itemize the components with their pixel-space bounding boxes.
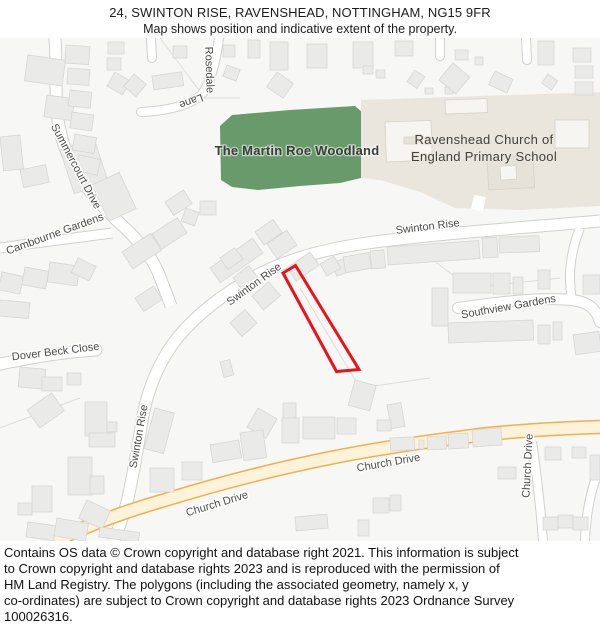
footer-line: HM Land Registry. The polygons (includin… (4, 577, 596, 593)
school-label-line1: Ravenshead Church of (415, 132, 554, 147)
footer-line: Contains OS data © Crown copyright and d… (4, 545, 596, 561)
school-label-line2: England Primary School (411, 149, 557, 164)
copyright-footer: Contains OS data © Crown copyright and d… (0, 541, 600, 625)
woodland-label: The Martin Roe Woodland (215, 143, 380, 158)
road-label-rosedale: Rosedale (202, 46, 216, 93)
footer-line: co-ordinates) are subject to Crown copyr… (4, 593, 596, 609)
footer-line: 100026316. (4, 609, 596, 625)
page-subtitle: Map shows position and indicative extent… (0, 20, 600, 36)
page-title: 24, SWINTON RISE, RAVENSHEAD, NOTTINGHAM… (0, 0, 600, 20)
property-map: The Martin Roe Woodland Ravenshead Churc… (0, 38, 600, 541)
header: 24, SWINTON RISE, RAVENSHEAD, NOTTINGHAM… (0, 0, 600, 38)
footer-line: to Crown copyright and database rights 2… (4, 561, 596, 577)
